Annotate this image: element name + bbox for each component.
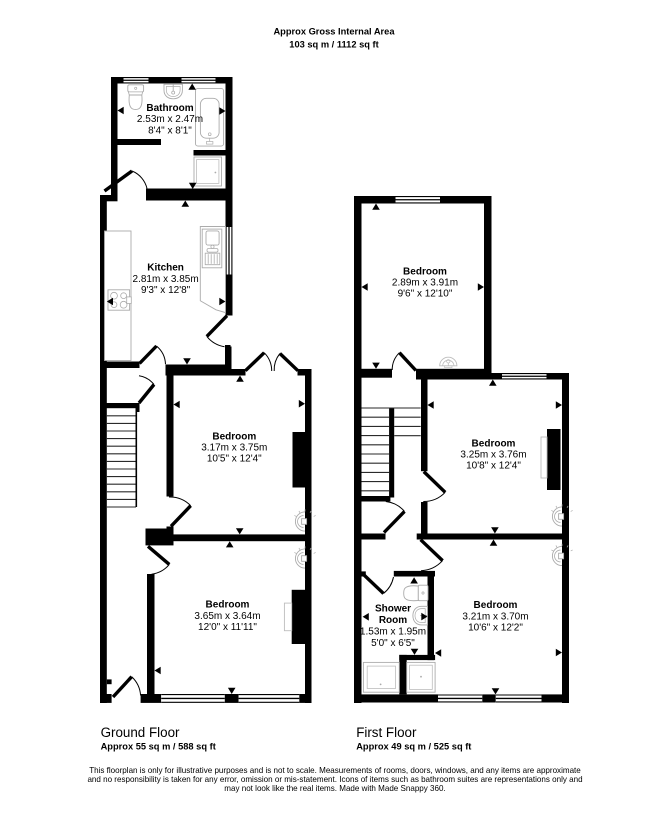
svg-text:103 sq m / 1112 sq ft: 103 sq m / 1112 sq ft <box>289 39 378 49</box>
svg-text:2.89m x 3.91m: 2.89m x 3.91m <box>392 278 458 289</box>
svg-text:5'0" x 6'5": 5'0" x 6'5" <box>371 638 415 649</box>
svg-text:3.17m x 3.75m: 3.17m x 3.75m <box>201 443 267 454</box>
svg-text:8'4" x 8'1": 8'4" x 8'1" <box>148 125 192 136</box>
svg-text:Bedroom: Bedroom <box>403 266 447 277</box>
svg-text:Bedroom: Bedroom <box>474 600 518 611</box>
svg-text:12'0" x 11'11": 12'0" x 11'11" <box>198 622 257 633</box>
svg-text:Approx Gross Internal Area: Approx Gross Internal Area <box>273 26 395 36</box>
svg-text:10'5" x 12'4": 10'5" x 12'4" <box>207 454 262 465</box>
svg-text:may not look like the real ite: may not look like the real items. Made w… <box>224 784 445 793</box>
svg-text:Bathroom: Bathroom <box>146 103 193 114</box>
svg-text:2.53m x 2.47m: 2.53m x 2.47m <box>137 114 203 125</box>
svg-text:3.25m x 3.76m: 3.25m x 3.76m <box>460 450 526 461</box>
svg-text:Shower: Shower <box>375 604 411 615</box>
svg-text:Approx 55 sq m / 588 sq ft: Approx 55 sq m / 588 sq ft <box>101 742 216 752</box>
svg-text:Room: Room <box>379 615 407 626</box>
svg-text:9'6" x 12'10": 9'6" x 12'10" <box>398 289 453 300</box>
svg-text:Ground Floor: Ground Floor <box>101 725 180 740</box>
svg-text:9'3" x 12'8": 9'3" x 12'8" <box>141 285 191 296</box>
svg-text:3.65m x 3.64m: 3.65m x 3.64m <box>194 611 260 622</box>
svg-text:Bedroom: Bedroom <box>472 438 516 449</box>
svg-text:10'8" x 12'4": 10'8" x 12'4" <box>466 461 521 472</box>
svg-text:Approx 49 sq m / 525 sq ft: Approx 49 sq m / 525 sq ft <box>356 742 471 752</box>
svg-text:3.21m x 3.70m: 3.21m x 3.70m <box>462 611 528 622</box>
svg-text:First Floor: First Floor <box>356 725 417 740</box>
svg-text:Kitchen: Kitchen <box>147 263 184 274</box>
svg-text:Bedroom: Bedroom <box>212 431 256 442</box>
svg-text:Bedroom: Bedroom <box>206 600 250 611</box>
svg-text:1.53m x 1.95m: 1.53m x 1.95m <box>360 627 426 638</box>
svg-text:2.81m x 3.85m: 2.81m x 3.85m <box>133 274 199 285</box>
svg-text:This floorplan is only for ill: This floorplan is only for illustrative … <box>89 766 581 775</box>
svg-text:and no responsibility is taken: and no responsibility is taken for any e… <box>87 775 582 784</box>
svg-text:10'6" x 12'2": 10'6" x 12'2" <box>468 623 523 634</box>
